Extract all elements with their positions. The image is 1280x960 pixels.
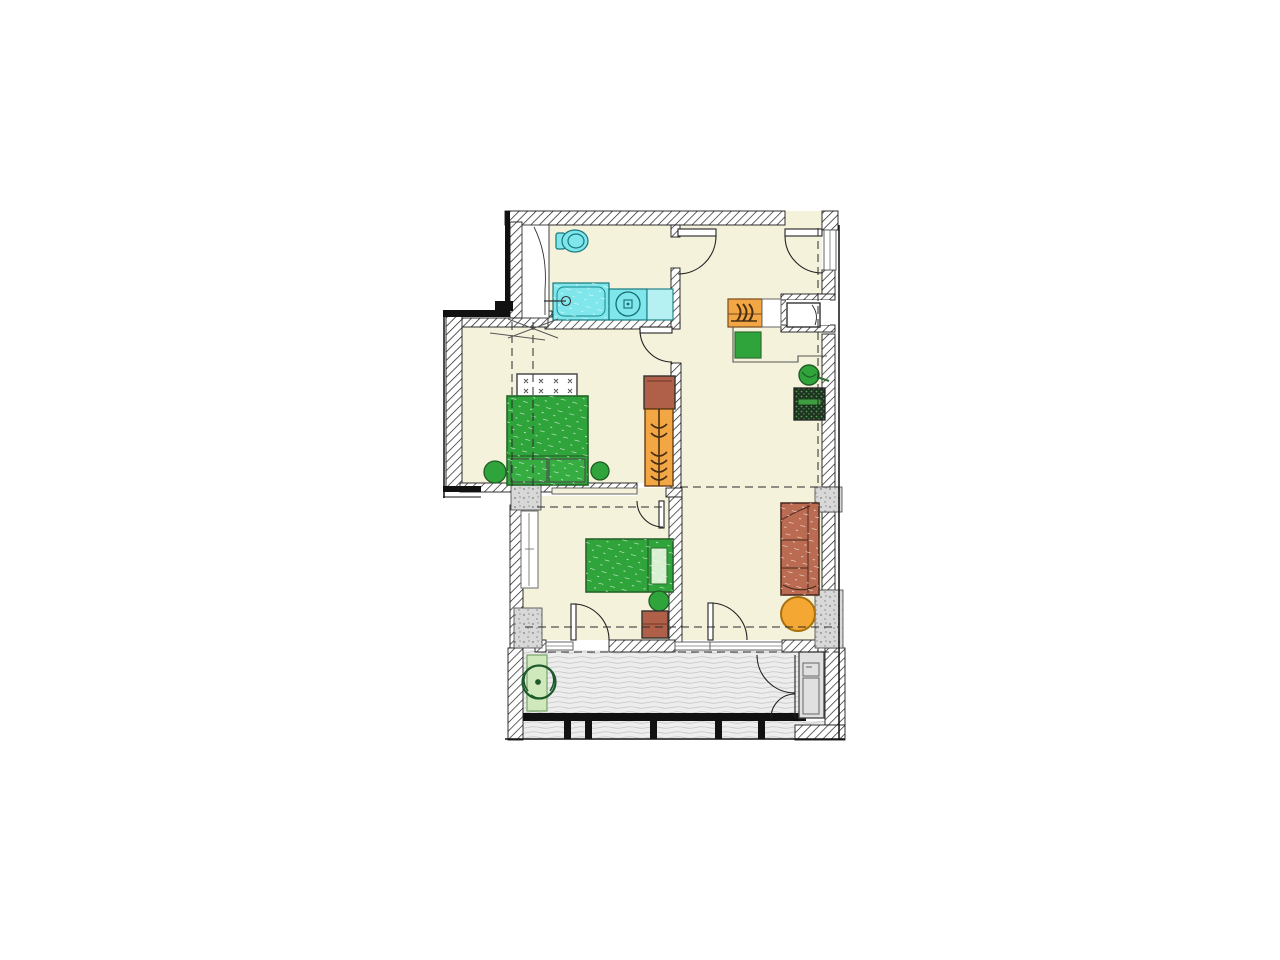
column <box>514 608 542 648</box>
bathroom-door-gap <box>671 237 680 270</box>
balcony-cabinet <box>799 652 824 718</box>
balcony-left-wall <box>508 648 523 740</box>
stove-icon <box>728 299 762 327</box>
headboard <box>517 374 577 397</box>
window-head-bar <box>443 310 510 317</box>
bedroom2-door-gap <box>637 488 666 497</box>
balcony-deck <box>523 650 825 714</box>
bottom-wall-seg3 <box>782 640 818 652</box>
balcony-right-wall <box>825 648 845 725</box>
bedroom1-door-gap <box>671 330 681 363</box>
wardrobe-open <box>645 409 673 486</box>
nightstand <box>642 611 668 638</box>
right-wall-a <box>822 270 835 297</box>
entrance-threshold <box>785 211 822 225</box>
bedroom2-top-wall <box>666 488 682 497</box>
wardrobe-tall <box>521 511 538 588</box>
floor-plan-drawing <box>0 0 1280 960</box>
double-bed <box>507 396 588 485</box>
appliance-unit <box>794 388 825 420</box>
bedroom1-top-wall <box>460 318 548 327</box>
bedroom1-left-wall <box>446 316 462 487</box>
window-head-bar <box>443 486 481 492</box>
kitchen-counter-section <box>762 299 781 327</box>
column <box>511 483 541 510</box>
top-wall <box>505 211 785 225</box>
toilet-icon <box>556 230 588 252</box>
balcony-railing <box>520 713 806 721</box>
fridge-icon <box>787 303 820 327</box>
fridge-niche-top <box>781 294 835 300</box>
sofa <box>781 503 819 595</box>
floor-plan-page <box>0 0 1280 960</box>
living-room-furniture <box>781 503 819 631</box>
interior-partition <box>552 488 637 494</box>
round-table <box>781 597 815 631</box>
right-wall-c <box>822 512 835 590</box>
kitchen-sink <box>735 332 761 358</box>
adjacent-wall-return <box>495 301 513 311</box>
balcony-corner-wall <box>795 725 845 740</box>
nightstand-round <box>484 461 506 483</box>
bathtub-icon <box>544 283 609 320</box>
single-bed <box>586 539 673 592</box>
plant-icon <box>649 591 669 611</box>
nightstand-round <box>591 462 609 480</box>
washing-machine-icon <box>609 289 647 320</box>
bottom-wall-seg2 <box>609 640 675 652</box>
top-wall-right <box>822 211 838 230</box>
adjacent-wall-line <box>505 211 510 311</box>
armchair <box>644 376 675 409</box>
bathroom-sink <box>647 289 673 320</box>
